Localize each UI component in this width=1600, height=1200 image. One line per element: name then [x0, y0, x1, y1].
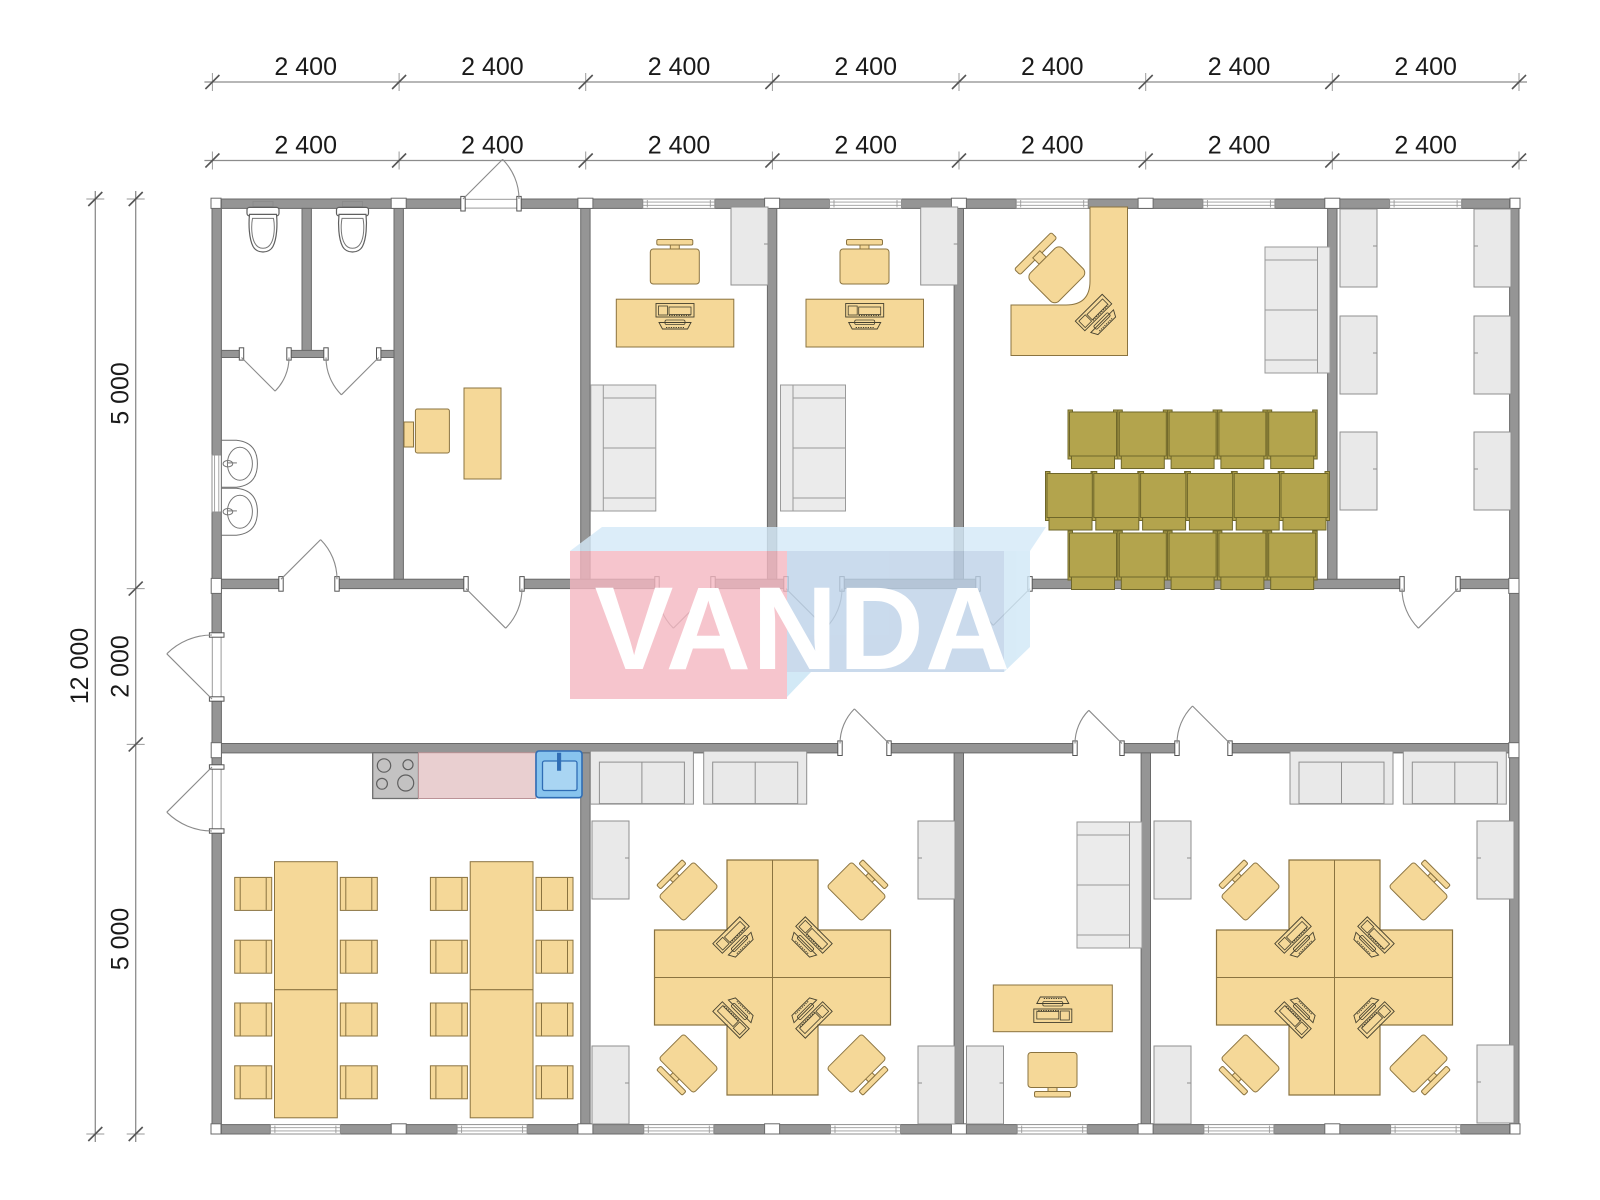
svg-text:VANDA: VANDA [595, 563, 1012, 695]
svg-text:2 400: 2 400 [648, 53, 711, 81]
svg-text:2 400: 2 400 [1021, 132, 1084, 160]
svg-text:2 000: 2 000 [107, 635, 135, 698]
svg-text:2 400: 2 400 [834, 53, 897, 81]
svg-text:2 400: 2 400 [461, 132, 524, 160]
svg-text:2 400: 2 400 [834, 132, 897, 160]
svg-text:2 400: 2 400 [1208, 132, 1271, 160]
svg-text:2 400: 2 400 [1208, 53, 1271, 81]
svg-text:5 000: 5 000 [107, 908, 135, 971]
svg-text:2 400: 2 400 [1394, 53, 1457, 81]
svg-text:12 000: 12 000 [66, 628, 94, 704]
svg-text:5 000: 5 000 [107, 362, 135, 425]
svg-text:2 400: 2 400 [1021, 53, 1084, 81]
svg-text:2 400: 2 400 [274, 132, 337, 160]
svg-text:2 400: 2 400 [274, 53, 337, 81]
svg-text:2 400: 2 400 [648, 132, 711, 160]
svg-text:2 400: 2 400 [461, 53, 524, 81]
svg-text:2 400: 2 400 [1394, 132, 1457, 160]
